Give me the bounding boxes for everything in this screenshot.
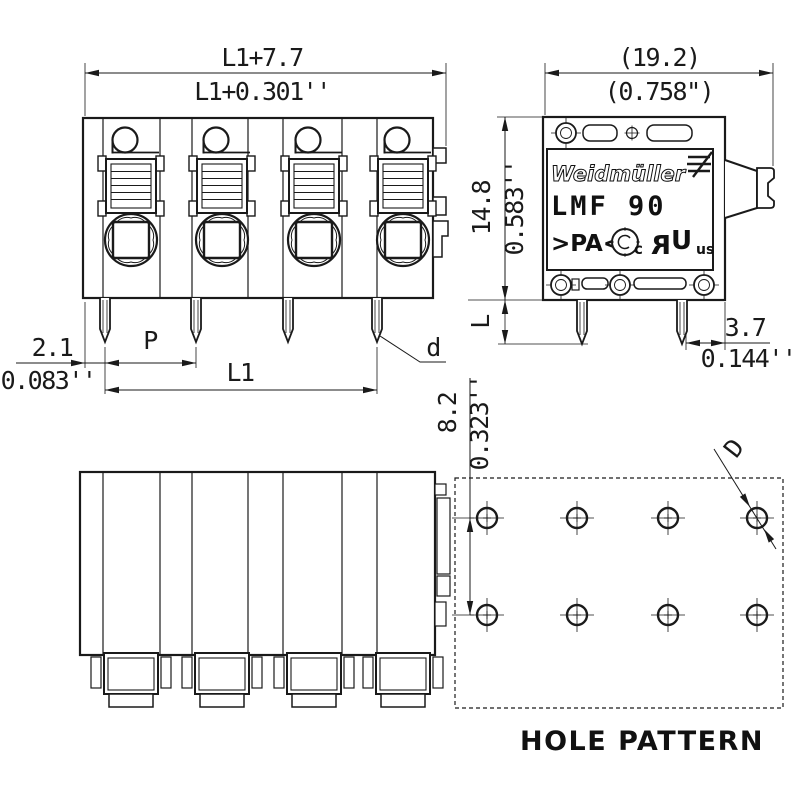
- wire-entry-funnel: [725, 160, 757, 218]
- solder-pin: [677, 300, 687, 344]
- side-latch-tab: [437, 498, 450, 574]
- dim-pin-diameter-label: d: [426, 333, 440, 362]
- svg-text:c: c: [634, 240, 643, 258]
- mounting-hole-icon: [470, 598, 504, 632]
- clamp-nose: [757, 168, 774, 208]
- vent-slot: [582, 278, 608, 289]
- mounting-hole-icon: [560, 598, 594, 632]
- dim-pitch-label: P: [143, 326, 157, 355]
- side-view: Weidmüller LMF 90 >PA< c R U us: [543, 117, 774, 344]
- dim-front-width-inch: L1+0.301'': [194, 77, 330, 106]
- vent-slot: [634, 278, 686, 289]
- bottom-view: [80, 472, 450, 707]
- dim-rear-offset: 3.7 0.144'': [686, 302, 795, 373]
- dim-row-spacing-inch: 0.323'': [465, 376, 494, 471]
- dim-rear-offset-inch: 0.144'': [701, 344, 796, 373]
- mounting-hole-icon: [651, 598, 685, 632]
- svg-text:us: us: [696, 242, 714, 258]
- mounting-hole-icon: [560, 501, 594, 535]
- dim-pin-offset-mm: 2.1: [32, 333, 73, 362]
- vent-slot: [647, 125, 692, 141]
- svg-text:U: U: [671, 226, 692, 256]
- dim-hole-diameter-label: D: [718, 434, 749, 463]
- dim-pin-offset-inch: 0.083'': [1, 366, 96, 395]
- dim-hole-diameter: D: [714, 434, 776, 549]
- brand-logo-text: Weidmüller: [551, 162, 687, 186]
- dim-height: 14.8 0.583'': [467, 117, 543, 300]
- hole-pattern: HOLE PATTERN: [455, 478, 783, 757]
- solder-pin: [100, 298, 110, 342]
- side-latch-tab: [435, 602, 446, 626]
- wire-entry-tab: [182, 653, 262, 707]
- dim-rear-offset-mm: 3.7: [725, 313, 766, 342]
- dim-pin-length-label: L: [466, 315, 495, 329]
- svg-text:R: R: [651, 231, 671, 261]
- technical-drawing-page: Weidmüller LMF 90 >PA< c R U us: [0, 0, 800, 800]
- mounting-hole-icon: [470, 501, 504, 535]
- hole-pattern-title: HOLE PATTERN: [520, 726, 764, 757]
- solder-pin: [372, 298, 382, 342]
- side-flange: [433, 221, 448, 257]
- front-view: [83, 118, 448, 342]
- dim-depth-mm: (19.2): [618, 43, 699, 72]
- wire-entry-tab: [91, 653, 171, 707]
- terminal-block-drawing: Weidmüller LMF 90 >PA< c R U us: [0, 0, 800, 800]
- dim-height-inch: 0.583'': [500, 161, 529, 256]
- side-latch-tab: [435, 484, 446, 495]
- solder-pin: [283, 298, 293, 342]
- dim-height-mm: 14.8: [467, 180, 496, 235]
- pcb-outline: [455, 478, 783, 708]
- wire-entry-tab: [363, 653, 443, 707]
- mounting-hole-icon: [651, 501, 685, 535]
- dim-depth-inch: (0.758"): [605, 77, 713, 106]
- wire-entry-tab: [274, 653, 354, 707]
- dim-span-label: L1: [226, 358, 254, 387]
- dim-pin-length: L: [466, 300, 588, 344]
- dim-row-spacing-mm: 8.2: [433, 393, 462, 434]
- side-latch-tab: [437, 576, 450, 596]
- model-number-text: LMF 90: [551, 191, 667, 222]
- solder-pin: [577, 300, 587, 344]
- mounting-hole-icon: [740, 598, 774, 632]
- solder-pin: [191, 298, 201, 342]
- dim-front-width-mm: L1+7.7: [221, 43, 303, 72]
- vent-slot: [583, 125, 617, 141]
